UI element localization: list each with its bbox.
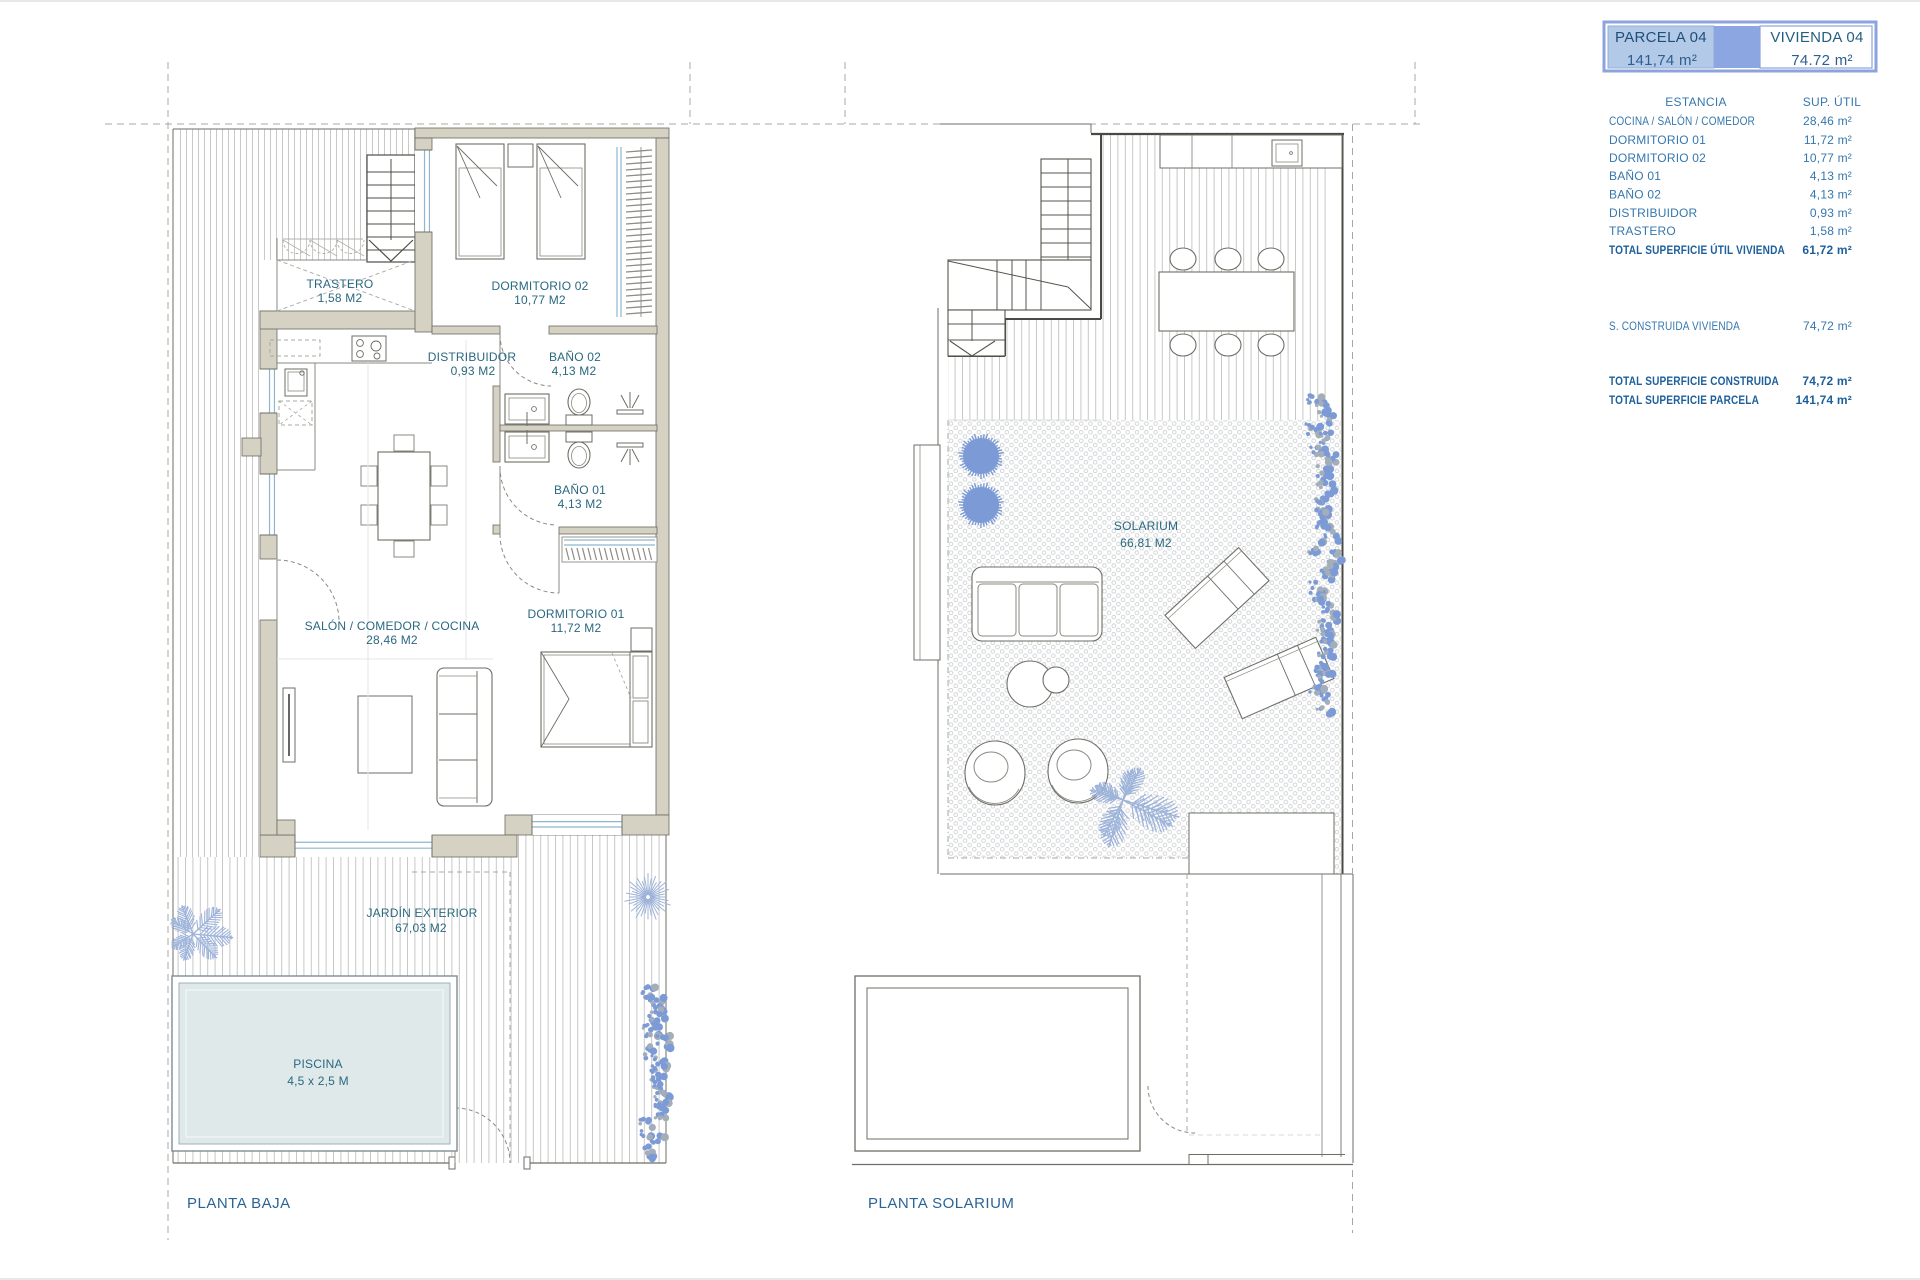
- svg-text:4,13 m²: 4,13 m²: [1810, 188, 1852, 202]
- svg-text:11,72 m²: 11,72 m²: [1804, 133, 1852, 147]
- svg-text:DORMITORIO 02: DORMITORIO 02: [1609, 151, 1706, 165]
- svg-text:DORMITORIO 01: DORMITORIO 01: [1609, 133, 1706, 147]
- svg-text:4,13 M2: 4,13 M2: [558, 497, 603, 511]
- svg-text:0,93 m²: 0,93 m²: [1810, 206, 1852, 220]
- svg-text:BAÑO 01: BAÑO 01: [1609, 169, 1661, 183]
- svg-text:TOTAL SUPERFICIE CONSTRUIDA: TOTAL SUPERFICIE CONSTRUIDA: [1609, 374, 1779, 388]
- svg-text:DISTRIBUIDOR: DISTRIBUIDOR: [428, 350, 517, 364]
- svg-text:74,72 m²: 74,72 m²: [1803, 319, 1852, 333]
- svg-text:TOTAL SUPERFICIE ÚTIL VIVIENDA: TOTAL SUPERFICIE ÚTIL VIVIENDA: [1609, 242, 1785, 257]
- svg-text:PLANTA BAJA: PLANTA BAJA: [187, 1195, 291, 1212]
- svg-text:1,58 M2: 1,58 M2: [318, 291, 363, 305]
- svg-text:SALÓN / COMEDOR / COCINA: SALÓN / COMEDOR / COCINA: [305, 618, 480, 633]
- svg-text:S. CONSTRUIDA VIVIENDA: S. CONSTRUIDA VIVIENDA: [1609, 319, 1740, 333]
- svg-text:DORMITORIO 01: DORMITORIO 01: [527, 607, 624, 621]
- svg-text:PLANTA SOLARIUM: PLANTA SOLARIUM: [868, 1195, 1014, 1212]
- svg-text:SUP. ÚTIL: SUP. ÚTIL: [1803, 94, 1862, 109]
- svg-text:11,72 M2: 11,72 M2: [551, 621, 602, 635]
- svg-text:1,58 m²: 1,58 m²: [1810, 224, 1852, 238]
- svg-text:4,13 M2: 4,13 M2: [552, 364, 597, 378]
- svg-text:10,77 m²: 10,77 m²: [1803, 151, 1852, 165]
- svg-text:TOTAL SUPERFICIE PARCELA: TOTAL SUPERFICIE PARCELA: [1609, 393, 1759, 407]
- svg-text:66,81 M2: 66,81 M2: [1120, 536, 1172, 550]
- svg-text:10,77 M2: 10,77 M2: [514, 293, 566, 307]
- svg-text:JARDÍN EXTERIOR: JARDÍN EXTERIOR: [366, 905, 477, 920]
- svg-text:TRASTERO: TRASTERO: [307, 277, 374, 291]
- svg-text:BAÑO 02: BAÑO 02: [549, 350, 601, 364]
- svg-text:61,72 m²: 61,72 m²: [1802, 243, 1852, 257]
- svg-text:ESTANCIA: ESTANCIA: [1665, 95, 1727, 109]
- svg-text:4,5 x 2,5 M: 4,5 x 2,5 M: [287, 1074, 349, 1088]
- svg-text:PARCELA 04: PARCELA 04: [1615, 29, 1707, 46]
- svg-text:SOLARIUM: SOLARIUM: [1114, 519, 1178, 533]
- svg-text:67,03 M2: 67,03 M2: [395, 921, 447, 935]
- svg-text:BAÑO 02: BAÑO 02: [1609, 188, 1661, 202]
- svg-text:4,13 m²: 4,13 m²: [1810, 169, 1852, 183]
- svg-text:VIVIENDA 04: VIVIENDA 04: [1770, 29, 1863, 46]
- svg-text:DISTRIBUIDOR: DISTRIBUIDOR: [1609, 206, 1698, 220]
- svg-text:COCINA / SALÓN / COMEDOR: COCINA / SALÓN / COMEDOR: [1609, 113, 1755, 128]
- svg-text:28,46 m²: 28,46 m²: [1803, 114, 1852, 128]
- svg-text:TRASTERO: TRASTERO: [1609, 224, 1676, 238]
- svg-text:141,74 m²: 141,74 m²: [1627, 52, 1697, 69]
- svg-text:141,74 m²: 141,74 m²: [1795, 393, 1852, 407]
- svg-text:0,93 M2: 0,93 M2: [451, 364, 496, 378]
- svg-text:BAÑO 01: BAÑO 01: [554, 483, 606, 497]
- svg-text:PISCINA: PISCINA: [293, 1057, 342, 1071]
- svg-text:74.72 m²: 74.72 m²: [1791, 52, 1853, 69]
- svg-text:74,72 m²: 74,72 m²: [1802, 374, 1852, 388]
- svg-text:DORMITORIO 02: DORMITORIO 02: [491, 279, 588, 293]
- svg-text:28,46 M2: 28,46 M2: [366, 633, 418, 647]
